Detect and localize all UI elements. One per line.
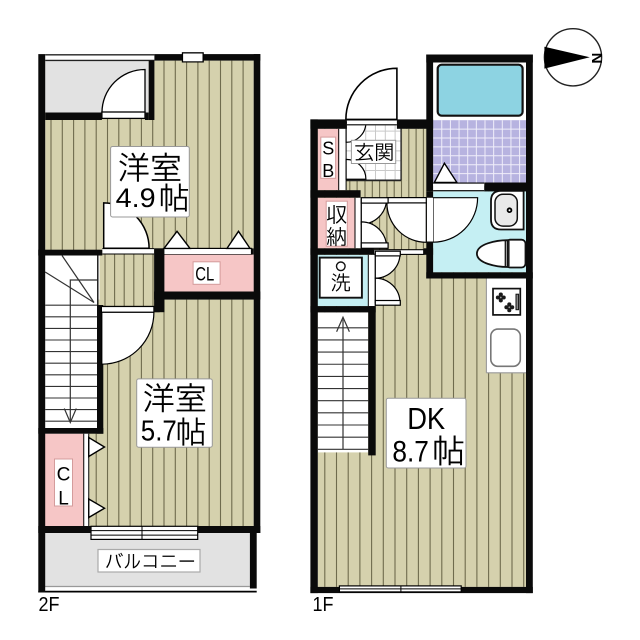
- svg-text:S: S: [322, 139, 334, 159]
- svg-text:5.7: 5.7: [141, 416, 177, 448]
- svg-text:C: C: [57, 465, 71, 486]
- svg-text:1F: 1F: [313, 594, 334, 616]
- svg-text:4.9: 4.9: [116, 183, 156, 213]
- svg-text:L: L: [58, 489, 69, 510]
- svg-text:B: B: [322, 161, 334, 181]
- svg-text:N: N: [588, 53, 605, 64]
- svg-text:DK: DK: [407, 401, 445, 436]
- svg-text:8.7: 8.7: [392, 435, 429, 468]
- svg-text:2F: 2F: [39, 594, 60, 616]
- svg-text:CL: CL: [195, 265, 214, 286]
